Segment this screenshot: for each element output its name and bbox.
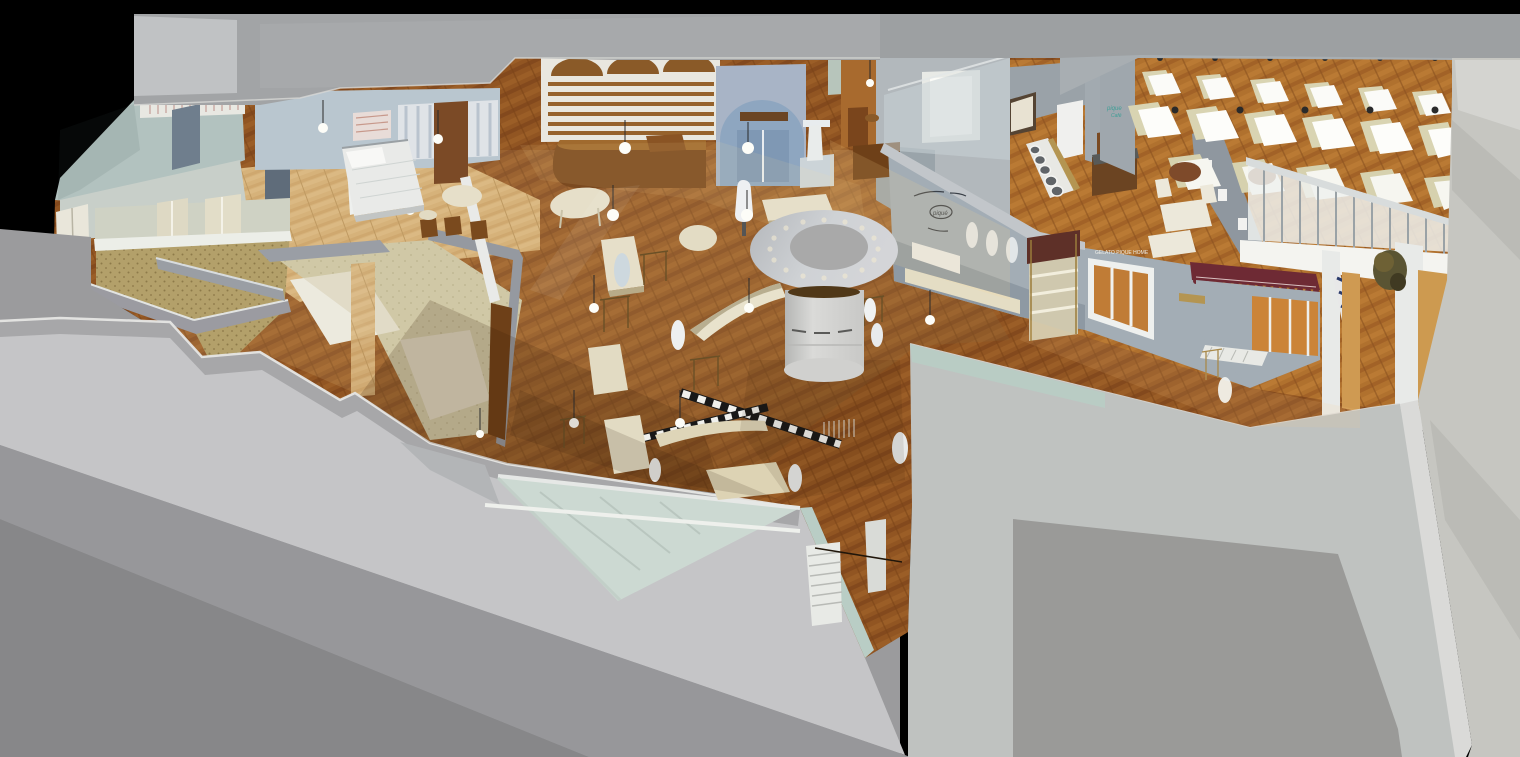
svg-text:GELATO PIQUE HOME: GELATO PIQUE HOME [1095, 250, 1149, 256]
svg-text:pique: pique [1106, 106, 1122, 112]
svg-text:Café: Café [1111, 113, 1122, 119]
